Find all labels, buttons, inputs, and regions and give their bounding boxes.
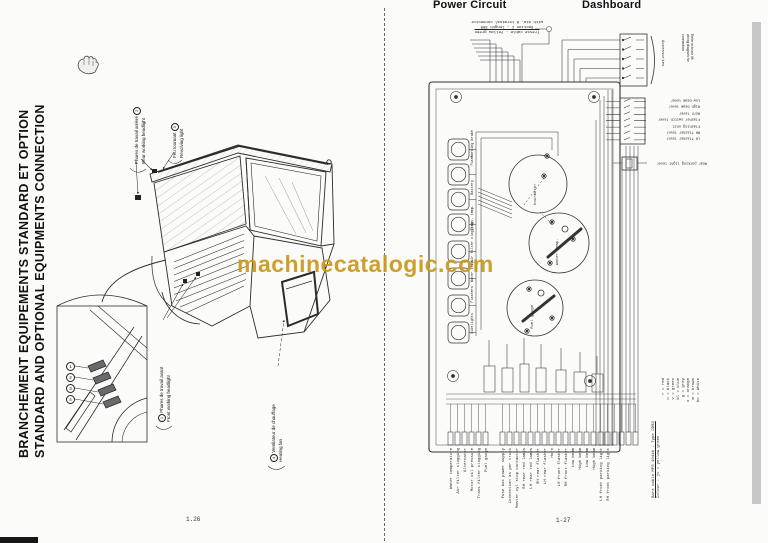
inset-number-1: 1 <box>66 362 75 371</box>
accessories-label: Accessories <box>659 40 664 66</box>
wire-label: LH rear red lamps <box>530 448 535 516</box>
callout-en: Heating fan <box>278 362 284 462</box>
callout-heating-fan: 4 Ventilateur de chauffage Heating fan <box>270 362 284 462</box>
callout-front-working-headlight: 1 Phares de travail avant Front working … <box>158 318 172 422</box>
lever-label: High beam lever <box>648 103 700 107</box>
lever-label: RH flasher lever <box>648 129 700 133</box>
lever-label: LH flasher lever <box>648 135 700 139</box>
wire-label: LH front parking light <box>600 448 605 516</box>
lever-label: Low beam lever <box>648 97 700 101</box>
wire-label: Low beam <box>572 448 577 516</box>
top-harness <box>470 27 552 83</box>
gauge-label-hourmeter: hourmeter <box>534 183 539 205</box>
callout-en: Front working headlight <box>166 318 172 422</box>
rear-parking-label: Rear parking light lever <box>649 160 707 164</box>
note-connector: with dia. 8 terminal connector <box>448 18 566 23</box>
wire-label: Water temperature <box>450 448 455 516</box>
note-tresse-cable: Tresse cable - Yellow green <box>448 28 566 33</box>
inset-number-2: 2 <box>66 373 75 382</box>
callout-fr: Ventilateur de chauffage <box>271 404 276 452</box>
indicator-lamps <box>448 139 469 343</box>
gauge-label-water-temp: water temp. <box>556 239 561 265</box>
wire-label: RH front flasher <box>565 448 570 516</box>
callout-number: 4 <box>270 454 278 462</box>
scan-corner-mark <box>0 537 38 543</box>
callout-en: Revolving light <box>179 88 185 158</box>
wire-label: Fuel gauge <box>485 448 490 516</box>
top-cable-note: Tresse cable - Yellow green Section C - … <box>448 18 566 33</box>
wire-label: Fuse box power supply <box>502 448 507 516</box>
hand-icon <box>78 56 98 74</box>
lever-label: Flashing unit <box>648 123 700 127</box>
lamp-label: Flashers <box>471 286 475 316</box>
accessories-connector <box>562 34 655 86</box>
header-dashboard: Dashboard <box>582 0 641 11</box>
left-page-number: 1.26 <box>186 516 200 523</box>
callout-en: Rear working headlight <box>141 60 147 164</box>
wire-label: High beam <box>593 448 598 516</box>
wire-label: Motor oil pressure <box>471 448 476 516</box>
accessories-note-line: wiring diagram for <box>685 34 689 92</box>
wire-bundles <box>469 90 638 446</box>
wire-label: Trans filter clogging <box>478 448 483 516</box>
gauges <box>507 154 589 336</box>
note-section: Section C - length 300 <box>448 23 566 28</box>
lever-label: Horn lever <box>648 110 700 114</box>
callout-number: 2 <box>133 107 141 115</box>
title-line-fr: BRANCHEMENT EQUIPEMENTS STANDARD ET OPTI… <box>16 90 32 458</box>
accessories-note-line: connection <box>681 34 685 92</box>
wire-label: Low beam <box>586 448 591 516</box>
accessories-note-line: Refer to truck lift <box>690 34 694 92</box>
callout-rear-working-headlight: Phares de travail arrière 2 Rear working… <box>133 60 147 164</box>
callout-revolving-light: Feu tournant 3 Revolving light <box>171 88 185 158</box>
callout-fr: Phares de travail arrière <box>134 116 139 164</box>
header-power-circuit: Power Circuit <box>433 0 507 11</box>
bottom-terminals <box>446 338 638 445</box>
inset-number-4: 4 <box>66 395 75 404</box>
wire-label: Alternator <box>464 448 469 516</box>
wire-label: Connection as per truck <box>509 448 514 516</box>
lamp-label: Sidelights <box>471 313 475 343</box>
wire-label: Horn <box>551 448 556 516</box>
cable-legend: Bare cable MFR 10416 - Type DDR3 Colour … <box>652 378 702 498</box>
watermark: machinecatalogic.com <box>237 251 494 278</box>
legend-entry: bc = white <box>697 378 702 498</box>
scan-edge-shadow <box>752 22 761 504</box>
wire-label: High beam <box>579 448 584 516</box>
wiring-diagram <box>429 27 655 453</box>
callout-number: 3 <box>171 123 179 131</box>
wire-label: RH rear flasher <box>537 448 542 516</box>
title-line-en: STANDARD AND OPTIONAL EQUIPMENTS CONNECT… <box>32 90 48 458</box>
gauge-label-fuel: fuel gauge <box>531 305 536 329</box>
wire-label: RH front parking light <box>607 448 612 516</box>
inset-number-3: 3 <box>66 384 75 393</box>
callout-number: 1 <box>158 414 166 422</box>
wire-label: LH front flasher <box>558 448 563 516</box>
callout-fr: Feu tournant <box>172 132 177 158</box>
lever-label: Flasher switch lever <box>648 116 700 120</box>
wire-label: Air filter clogging <box>457 448 462 516</box>
accessories-note: Refer to truck lift wiring diagram for c… <box>681 34 694 92</box>
right-page-number: 1-27 <box>556 517 570 524</box>
scanned-manual-page: BRANCHEMENT EQUIPEMENTS STANDARD ET OPTI… <box>0 0 768 543</box>
left-page-title: BRANCHEMENT EQUIPEMENTS STANDARD ET OPTI… <box>16 90 48 458</box>
wire-label: RH rear red lamps <box>523 448 528 516</box>
callout-fr: Phares de travail avant <box>159 367 164 413</box>
wire-label: Master cyl stop contactor <box>516 448 521 516</box>
wire-label: LH rear flasher <box>544 448 549 516</box>
